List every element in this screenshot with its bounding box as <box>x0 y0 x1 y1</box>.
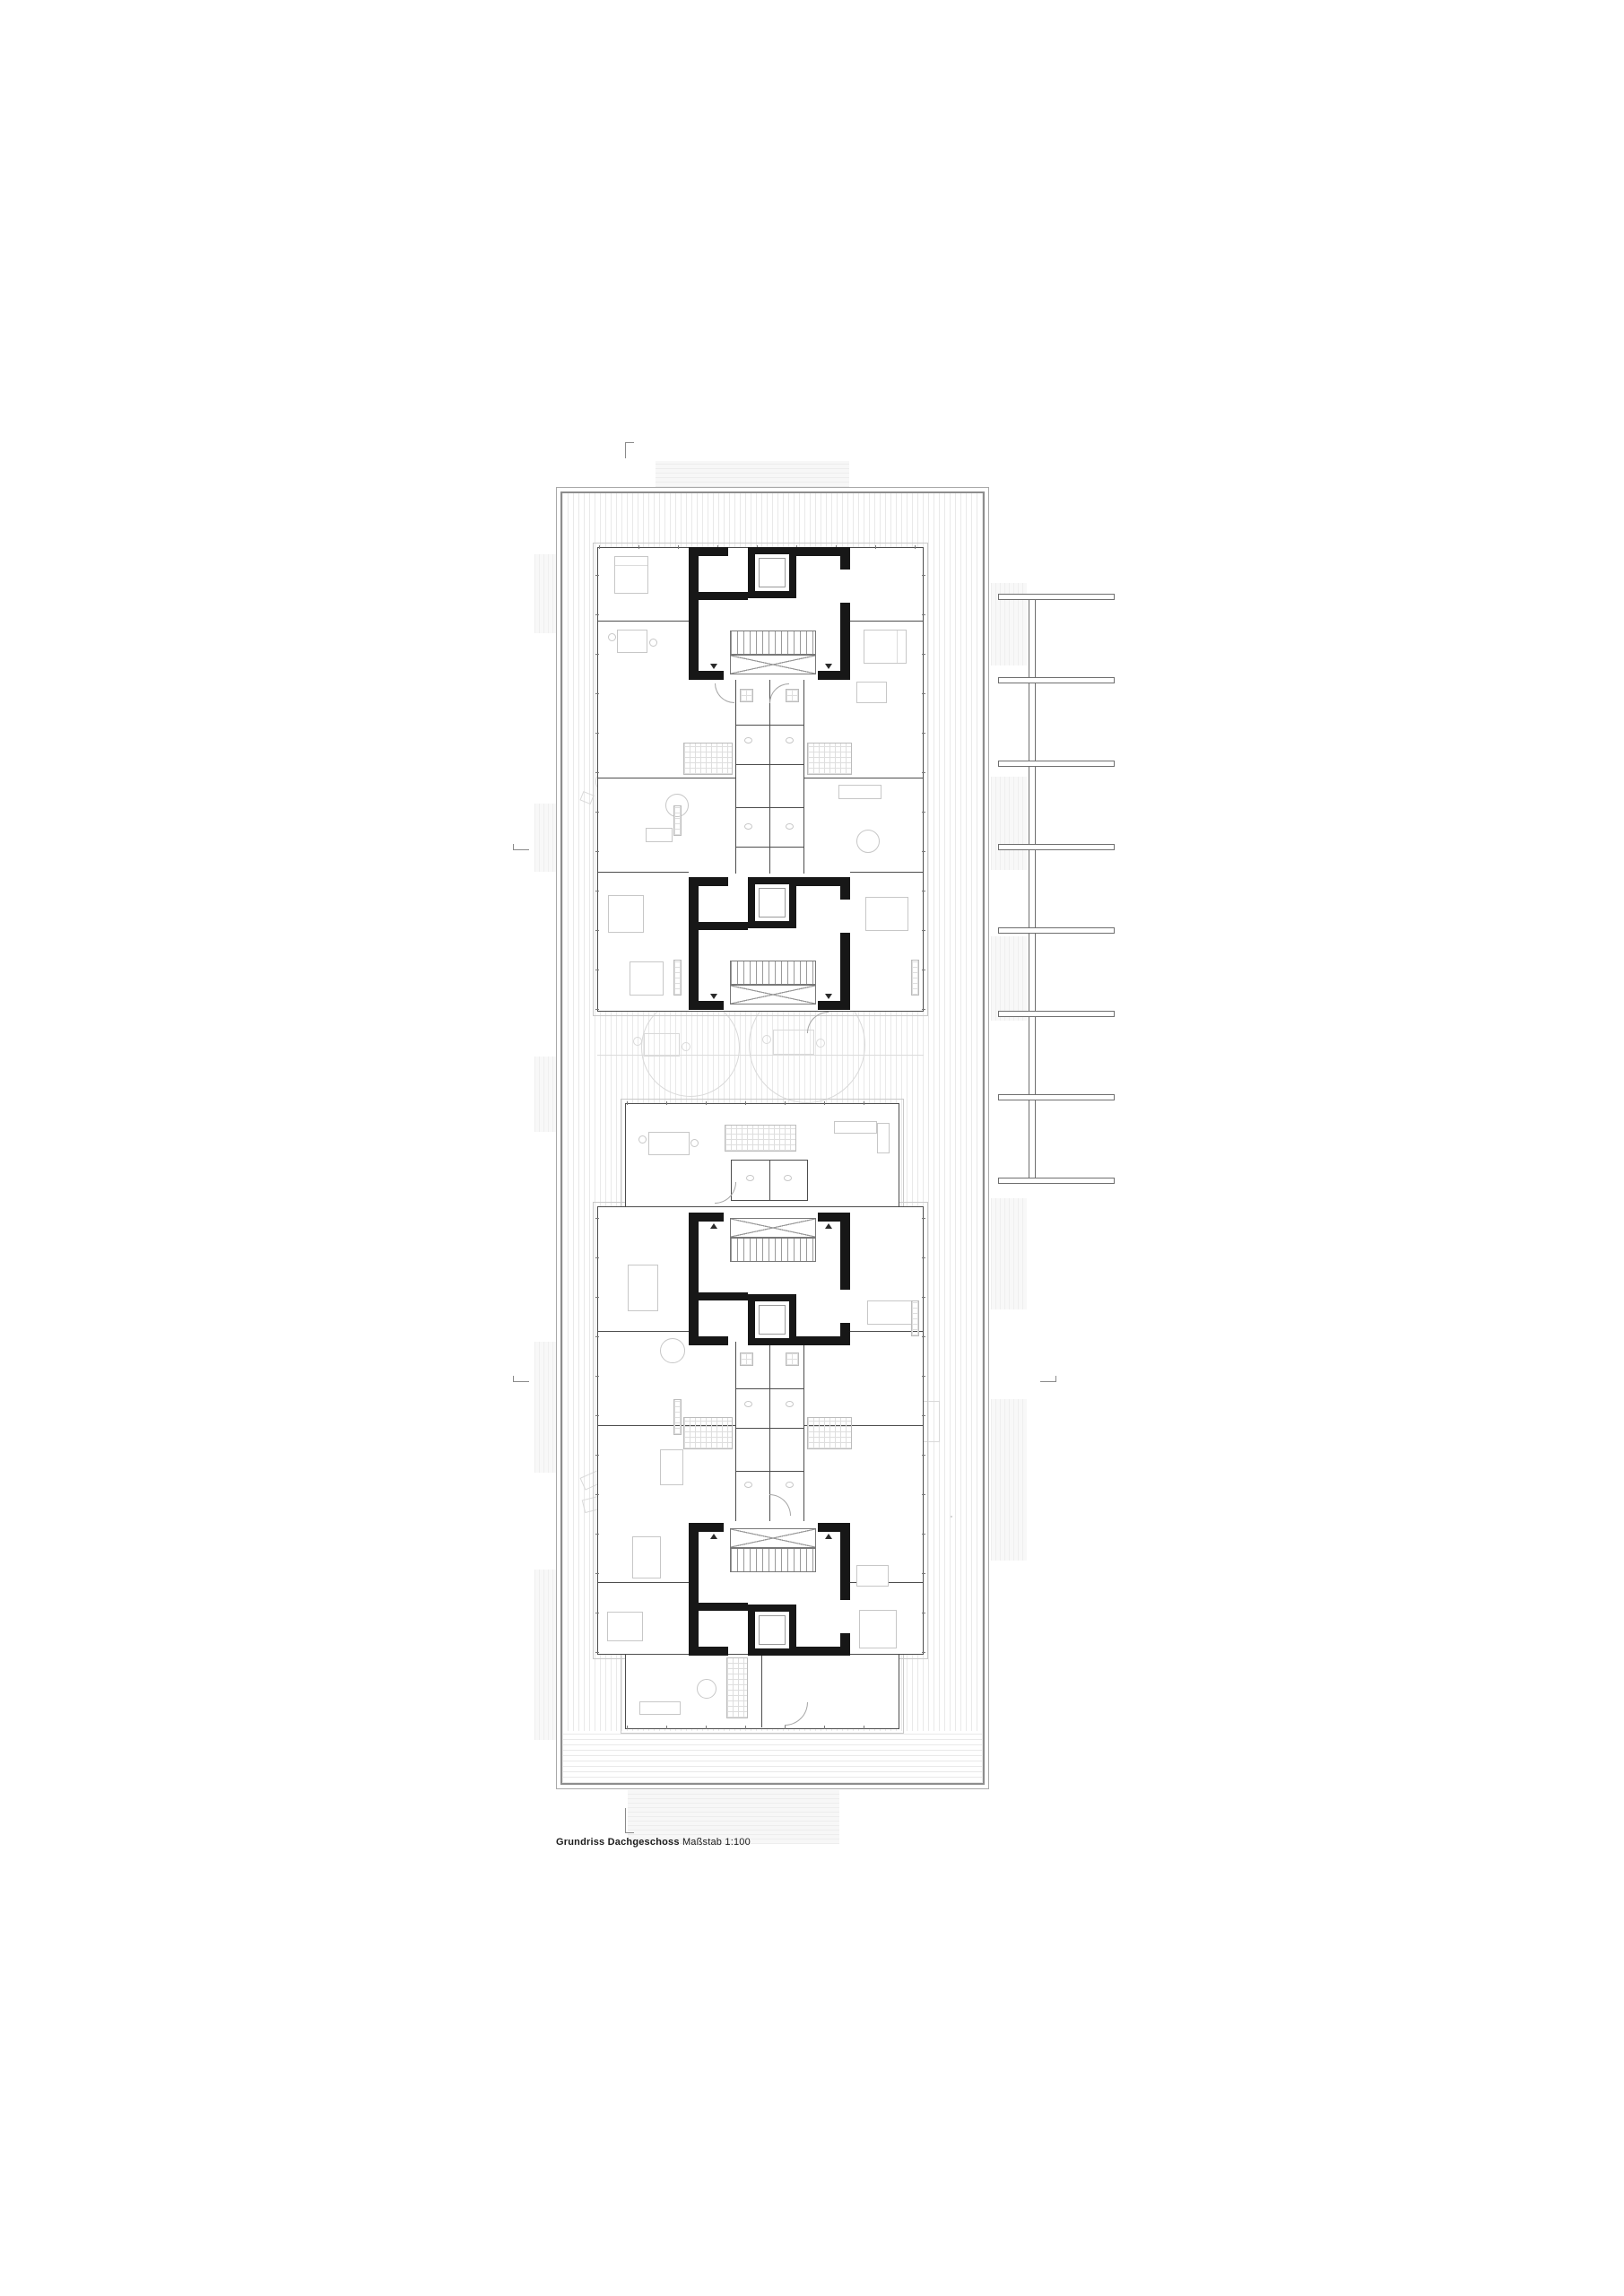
lounge-table <box>697 1679 716 1699</box>
pergola-rung <box>998 1011 1115 1017</box>
core-wall <box>689 1523 699 1656</box>
shower <box>786 1352 799 1366</box>
section-mark-top-icon <box>625 442 626 458</box>
toilet <box>744 1482 752 1488</box>
building-lower-living-south <box>625 1652 899 1729</box>
core-wall <box>699 1603 748 1611</box>
stair-cross <box>730 1528 816 1548</box>
core-wall <box>818 1001 850 1010</box>
drawing-sheet: Grundriss Dachgeschoss Maßstab 1:100 <box>0 0 1624 2296</box>
stair-arrow <box>710 994 717 999</box>
terrace-table <box>644 1033 680 1057</box>
pergola-rung <box>998 844 1115 850</box>
core-wall <box>689 547 728 556</box>
toilet <box>784 1175 792 1181</box>
bed <box>867 1300 912 1325</box>
section-mark-top-icon <box>625 442 634 443</box>
dining-table <box>648 1132 690 1155</box>
corridor-wall <box>735 680 736 874</box>
roof-shadow-left-5 <box>534 1570 556 1740</box>
section-mark-bottom-icon <box>625 1832 634 1833</box>
core-wall <box>689 877 699 1010</box>
sofa <box>838 785 881 799</box>
dining-table <box>856 1565 889 1587</box>
stair-core-1 <box>689 547 850 680</box>
sofa <box>646 828 673 842</box>
bed-pillow-line <box>615 565 647 566</box>
core-wall <box>689 1213 699 1345</box>
core-wall <box>818 671 850 680</box>
roof-shadow-right-4 <box>991 1198 1027 1309</box>
corridor-cell-wall <box>736 764 803 765</box>
bed <box>632 1536 661 1578</box>
corridor-cell-wall <box>736 1471 803 1472</box>
window-ticks <box>627 1726 898 1729</box>
window-ticks <box>595 549 599 1010</box>
window-ticks <box>922 549 925 1010</box>
armchair <box>951 1516 952 1518</box>
stair-arrow <box>825 1223 832 1229</box>
desk <box>660 1449 683 1485</box>
room-wall <box>597 1582 689 1583</box>
stair-treads <box>730 1238 816 1262</box>
corridor-cell-wall <box>736 1428 803 1429</box>
terrace-chair <box>762 1035 771 1044</box>
corridor-cell-wall <box>736 1388 803 1389</box>
bed-pillow-line <box>897 631 898 663</box>
wardrobe <box>673 1399 682 1435</box>
stair-arrow <box>825 664 832 669</box>
pergola-rung <box>998 927 1115 934</box>
roof-shadow-right-2 <box>991 777 1027 870</box>
roof-shadow-right-3 <box>991 936 1027 1021</box>
wardrobe <box>673 960 682 996</box>
caption-scale: Maßstab 1:100 <box>682 1837 751 1848</box>
window-ticks <box>922 1208 925 1653</box>
elevator-cab <box>755 554 789 591</box>
shower <box>740 689 753 702</box>
corridor-cell-wall <box>736 847 803 848</box>
stair-core-3 <box>689 1213 850 1345</box>
core-wall <box>796 1336 850 1345</box>
terrace-chair <box>633 1037 642 1046</box>
roof-shadow-right-5 <box>991 1399 1027 1561</box>
roof-shadow-left-3 <box>534 1057 556 1132</box>
chair <box>649 639 657 647</box>
kitchen-counter <box>807 1417 852 1449</box>
core-wall <box>796 547 850 556</box>
room-wall <box>761 1656 762 1727</box>
kitchen-counter <box>726 1657 748 1718</box>
core-wall <box>689 547 699 680</box>
bed <box>607 1612 643 1641</box>
terrace-chair <box>816 1039 825 1048</box>
bathroom-divider <box>769 1160 770 1201</box>
section-mark-left-icon <box>513 1381 529 1382</box>
terrace-table <box>773 1030 814 1055</box>
core-wall <box>840 933 850 1010</box>
pergola-rung <box>998 761 1115 767</box>
stair-arrow <box>825 1534 832 1539</box>
stair-core-2 <box>689 877 850 1010</box>
sofa <box>877 1123 890 1153</box>
kitchen-island <box>725 1125 796 1152</box>
chair <box>690 1139 699 1147</box>
room-wall <box>850 872 924 873</box>
stair-arrow <box>710 1534 717 1539</box>
wardrobe <box>911 960 919 996</box>
section-mark-left-icon <box>513 844 514 850</box>
bed <box>864 630 907 664</box>
corridor-cell-wall <box>736 725 803 726</box>
corridor-wall <box>735 1342 736 1521</box>
corridor-wall <box>803 1342 804 1521</box>
core-wall <box>699 922 748 930</box>
corridor-wall <box>803 680 804 874</box>
sofa <box>639 1701 681 1715</box>
section-mark-left-icon <box>513 1376 514 1382</box>
core-wall <box>818 1523 850 1532</box>
sofa <box>628 1265 658 1311</box>
room-wall <box>597 621 689 622</box>
bed <box>608 895 644 933</box>
stair-treads <box>730 1548 816 1572</box>
stair-treads <box>730 961 816 985</box>
terrace-deck-hatch-bottom <box>563 1731 982 1783</box>
roof-shadow-left-2 <box>534 804 556 872</box>
pergola-rung <box>998 594 1115 600</box>
room-wall <box>597 1331 689 1332</box>
window-ticks <box>627 1101 898 1105</box>
stair-cross <box>730 1218 816 1238</box>
stair-cross <box>730 655 816 674</box>
roof-shadow-bottom <box>628 1790 839 1844</box>
toilet <box>786 1401 794 1407</box>
pergola-rung <box>998 677 1115 683</box>
bed <box>859 1610 897 1648</box>
pergola-rung <box>998 1178 1115 1184</box>
wardrobe <box>911 1300 919 1336</box>
room-wall <box>850 621 924 622</box>
toilet <box>786 737 794 744</box>
elevator-cab <box>755 1301 789 1338</box>
core-wall <box>840 603 850 680</box>
core-wall <box>818 1213 850 1222</box>
corridor-cell-wall <box>736 807 803 808</box>
wardrobe <box>673 805 682 836</box>
stair-arrow <box>710 664 717 669</box>
stair-core-4 <box>689 1523 850 1656</box>
bed <box>614 556 648 594</box>
kitchen-counter <box>807 743 852 775</box>
window-ticks <box>595 1208 599 1653</box>
core-wall <box>689 1001 724 1010</box>
toilet <box>786 1482 794 1488</box>
section-mark-right-icon <box>1040 1381 1056 1382</box>
chair <box>638 1135 647 1144</box>
core-wall <box>689 1336 728 1345</box>
terrace-edge-line <box>597 1055 924 1056</box>
section-mark-right-icon <box>1055 1376 1056 1382</box>
toilet <box>786 823 794 830</box>
dining-table-round <box>660 1338 685 1363</box>
bed <box>865 897 908 931</box>
core-wall <box>699 592 748 600</box>
stair-treads <box>730 631 816 655</box>
dining-table <box>617 630 647 653</box>
core-wall <box>689 1647 728 1656</box>
corridor-wall <box>769 680 770 874</box>
core-wall <box>796 877 850 886</box>
chair <box>608 633 616 641</box>
core-wall <box>796 1647 850 1656</box>
elevator-cab <box>755 884 789 921</box>
room-wall <box>597 872 689 873</box>
drawing-caption: Grundriss Dachgeschoss Maßstab 1:100 <box>556 1837 751 1848</box>
roof-shadow-left-4 <box>534 1342 556 1473</box>
lounge-table <box>856 830 880 853</box>
room-wall <box>597 778 735 778</box>
caption-title: Grundriss Dachgeschoss <box>556 1837 680 1848</box>
sofa <box>834 1121 877 1134</box>
toilet <box>744 823 752 830</box>
toilet <box>744 1401 752 1407</box>
room-wall <box>803 778 924 778</box>
dining-table <box>856 682 887 703</box>
kitchen-counter <box>683 1417 733 1449</box>
bed <box>630 961 664 996</box>
core-wall <box>699 1292 748 1300</box>
pergola-rung <box>998 1094 1115 1100</box>
stair-cross <box>730 985 816 1004</box>
core-wall <box>689 1523 724 1532</box>
core-wall <box>689 877 728 886</box>
core-wall <box>840 1213 850 1290</box>
roof-shadow-top <box>656 461 849 487</box>
stair-arrow <box>825 994 832 999</box>
kitchen-counter <box>683 743 733 775</box>
core-wall <box>840 1523 850 1600</box>
stair-arrow <box>710 1223 717 1229</box>
elevator-cab <box>755 1612 789 1648</box>
core-wall <box>689 671 724 680</box>
core-wall <box>689 1213 724 1222</box>
section-mark-left-icon <box>513 849 529 850</box>
terrace-chair <box>682 1042 690 1051</box>
toilet <box>746 1175 754 1181</box>
section-mark-bottom-icon <box>625 1808 626 1833</box>
toilet <box>744 737 752 744</box>
shower <box>740 1352 753 1366</box>
roof-shadow-left-1 <box>534 554 556 633</box>
